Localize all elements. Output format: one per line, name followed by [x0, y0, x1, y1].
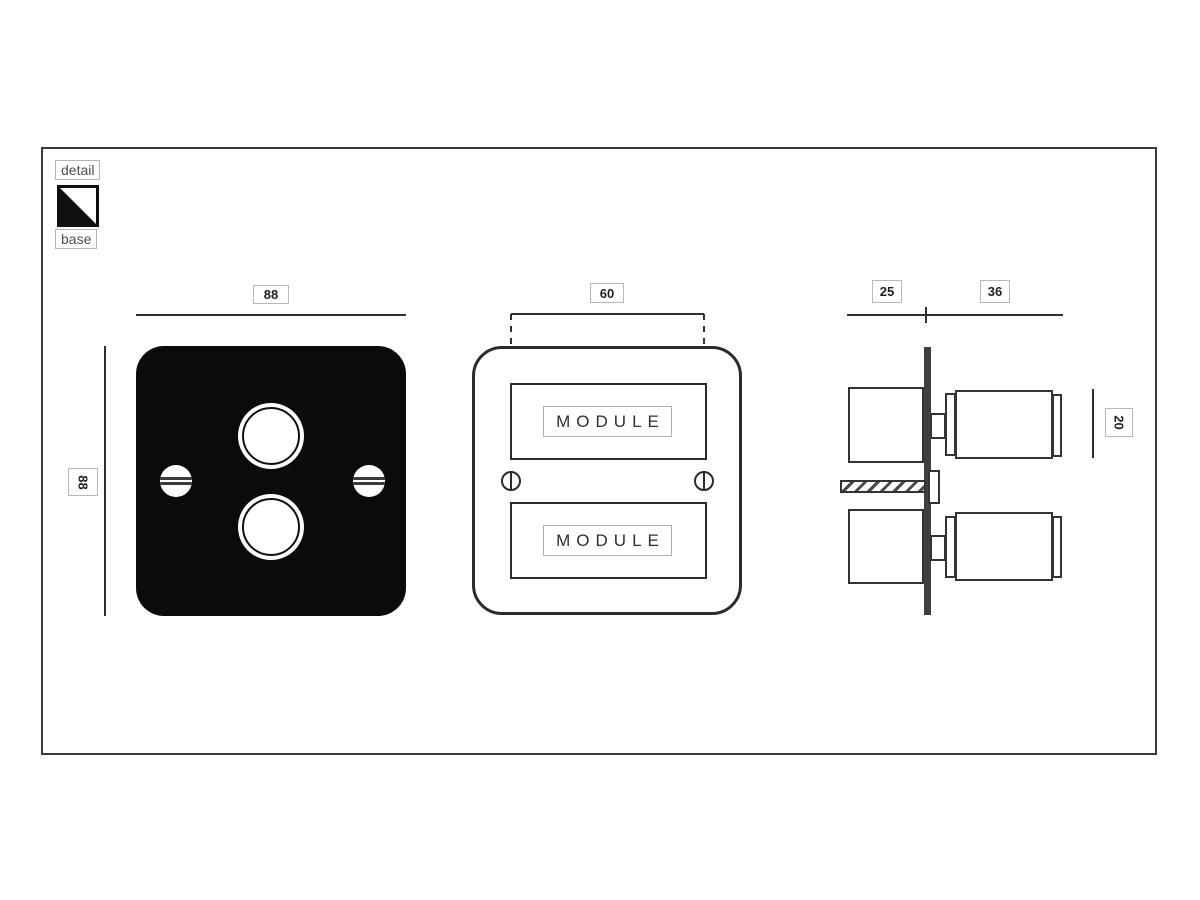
screw-right	[353, 465, 385, 497]
dimmer-knob-bottom	[238, 494, 304, 560]
screw-detail-right	[694, 471, 714, 491]
screw-slot	[353, 482, 385, 485]
knob-cap-top	[1052, 394, 1062, 457]
fixing-screw-bushing	[928, 470, 940, 504]
module-label-top: MODULE	[543, 406, 672, 437]
screw-slot	[510, 473, 512, 489]
finish-swatch	[57, 185, 99, 227]
knob-height-dim-label: 20	[1105, 408, 1133, 437]
legend-detail-label: detail	[55, 160, 100, 180]
screw-slot	[353, 477, 385, 480]
screw-slot	[160, 477, 192, 480]
knob-body-bottom	[955, 512, 1053, 581]
knob-cap-bottom	[1052, 516, 1062, 578]
knob-ring	[242, 407, 300, 465]
knob-body-top	[955, 390, 1053, 459]
screw-slot	[703, 473, 705, 489]
knob-stem-bottom	[930, 535, 946, 561]
front-width-dim-label: 88	[253, 285, 289, 304]
depth-dim-tick	[925, 307, 927, 323]
front-height-dim-line	[104, 346, 106, 616]
knob-stem-top	[930, 413, 946, 439]
front-height-dim-label: 88	[68, 468, 98, 496]
front-depth-dim-label: 36	[980, 280, 1010, 303]
module-width-dim-label: 60	[590, 283, 624, 303]
front-width-dim-line	[136, 314, 406, 316]
product-dimension-drawing: detail base 88 88 60 MODULE MODULE 25 36	[0, 0, 1200, 900]
screw-left	[160, 465, 192, 497]
back-box-bottom	[848, 509, 924, 584]
dimmer-knob-top	[238, 403, 304, 469]
fixing-screw-thread	[840, 480, 926, 493]
module-width-dim-line	[511, 313, 704, 315]
knob-ring	[242, 498, 300, 556]
knob-height-dim-line	[1092, 389, 1094, 458]
legend-base-label: base	[55, 229, 97, 249]
depth-dim-line	[847, 314, 1063, 316]
screw-slot	[160, 482, 192, 485]
back-depth-dim-label: 25	[872, 280, 902, 303]
module-label-bottom: MODULE	[543, 525, 672, 556]
screw-detail-left	[501, 471, 521, 491]
back-box-top	[848, 387, 924, 463]
